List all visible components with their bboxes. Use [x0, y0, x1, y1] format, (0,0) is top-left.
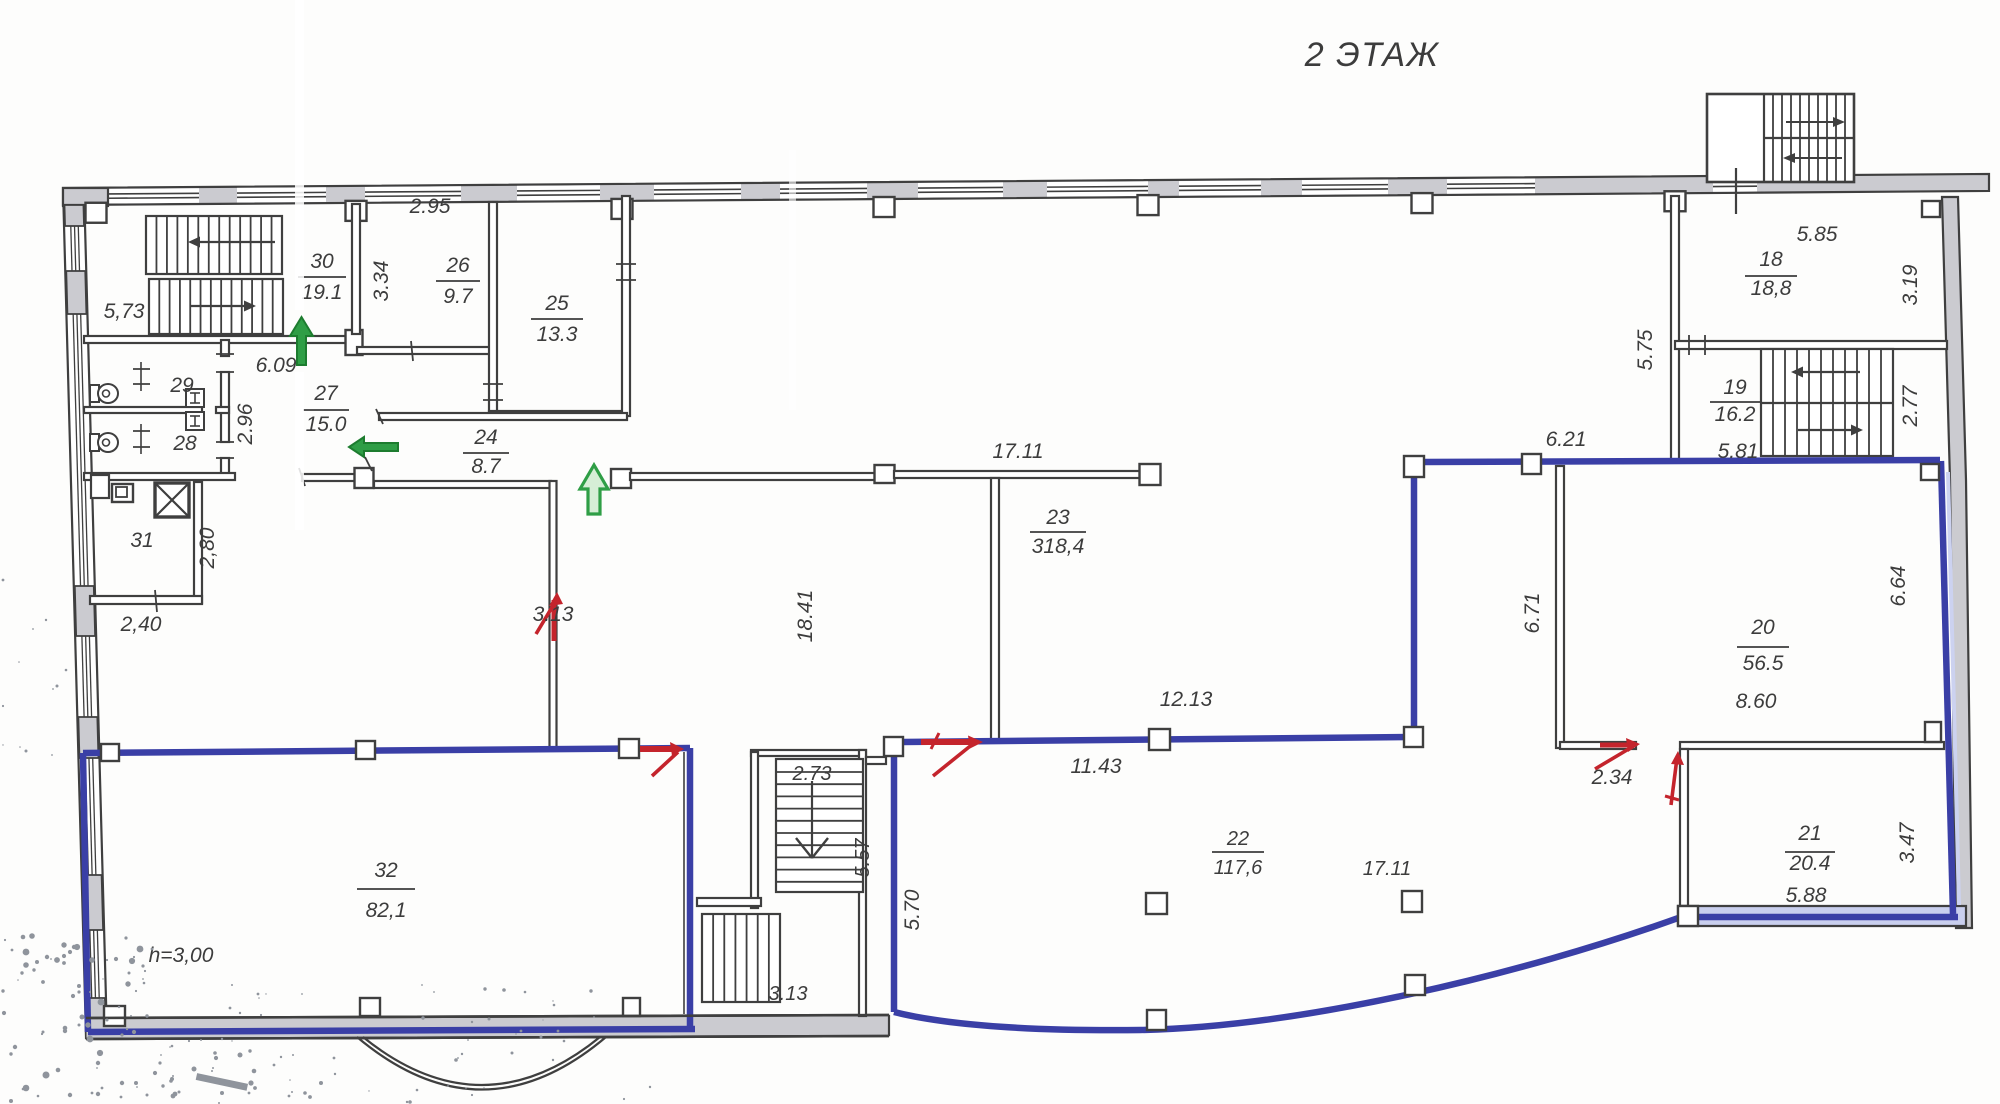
svg-text:2.96: 2.96: [234, 403, 257, 445]
svg-text:3.19: 3.19: [1899, 264, 1922, 305]
svg-text:117,6: 117,6: [1214, 857, 1263, 879]
svg-text:19.1: 19.1: [302, 281, 343, 304]
svg-text:8.7: 8.7: [471, 455, 502, 478]
svg-text:318,4: 318,4: [1032, 535, 1085, 558]
svg-text:21: 21: [1797, 822, 1821, 845]
svg-text:3.34: 3.34: [370, 261, 393, 302]
svg-text:h=3,00: h=3,00: [149, 944, 214, 967]
svg-text:11.43: 11.43: [1071, 755, 1122, 778]
svg-text:24: 24: [473, 426, 497, 449]
svg-text:23: 23: [1045, 506, 1070, 529]
svg-text:9.7: 9.7: [443, 285, 474, 308]
svg-text:5.88: 5.88: [1786, 884, 1827, 907]
svg-text:2 ЭТАЖ: 2 ЭТАЖ: [1304, 36, 1440, 74]
svg-text:17.11: 17.11: [1363, 858, 1412, 880]
svg-text:20: 20: [1750, 616, 1775, 639]
svg-text:2.34: 2.34: [1591, 766, 1633, 789]
svg-text:32: 32: [374, 859, 398, 882]
svg-text:31: 31: [130, 529, 153, 552]
svg-text:8.60: 8.60: [1736, 690, 1777, 713]
svg-text:3.47: 3.47: [1896, 821, 1919, 863]
svg-text:18: 18: [1759, 248, 1783, 271]
svg-text:6.64: 6.64: [1887, 566, 1910, 607]
svg-text:6.09: 6.09: [256, 354, 297, 377]
svg-text:3.13: 3.13: [533, 603, 574, 626]
svg-text:5.57: 5.57: [852, 838, 874, 878]
svg-text:2.77: 2.77: [1899, 384, 1922, 427]
svg-text:5.75: 5.75: [1634, 329, 1657, 370]
svg-text:82,1: 82,1: [366, 899, 407, 922]
svg-text:27: 27: [313, 382, 339, 405]
svg-text:3.13: 3.13: [769, 983, 808, 1005]
svg-text:2,40: 2,40: [120, 613, 162, 636]
svg-text:13.3: 13.3: [537, 323, 578, 346]
svg-text:5.85: 5.85: [1797, 223, 1838, 246]
svg-text:25: 25: [544, 292, 569, 315]
svg-text:29: 29: [169, 374, 194, 397]
svg-text:26: 26: [445, 254, 470, 277]
svg-text:17.11: 17.11: [993, 440, 1044, 463]
svg-text:30: 30: [310, 250, 334, 273]
svg-text:6.71: 6.71: [1521, 593, 1544, 634]
svg-text:5.81: 5.81: [1718, 440, 1759, 463]
svg-text:28: 28: [172, 432, 197, 455]
svg-text:19: 19: [1723, 376, 1747, 399]
svg-text:22: 22: [1226, 828, 1249, 850]
svg-text:16.2: 16.2: [1715, 403, 1756, 426]
svg-text:6.21: 6.21: [1546, 428, 1587, 451]
svg-text:56.5: 56.5: [1743, 652, 1784, 675]
svg-text:12.13: 12.13: [1160, 688, 1213, 711]
svg-text:5,73: 5,73: [104, 300, 145, 323]
svg-text:15.0: 15.0: [306, 413, 347, 436]
svg-text:20.4: 20.4: [1789, 852, 1831, 875]
svg-text:2.95: 2.95: [409, 195, 451, 218]
svg-text:2,80: 2,80: [196, 527, 219, 569]
svg-text:18.41: 18.41: [794, 590, 817, 643]
svg-text:2.73: 2.73: [792, 763, 832, 785]
svg-text:5.70: 5.70: [901, 889, 924, 930]
svg-text:18,8: 18,8: [1751, 277, 1792, 300]
